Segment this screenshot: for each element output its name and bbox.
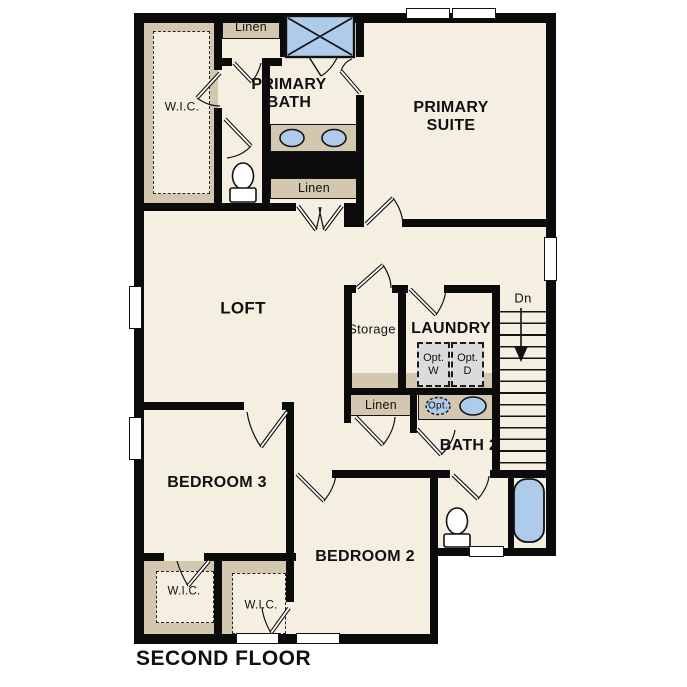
shower <box>286 16 354 76</box>
label-linen-mid: Linen <box>298 181 330 195</box>
bathtub <box>514 479 544 542</box>
sink <box>460 397 486 415</box>
label-bath2: BATH 2 <box>440 437 498 455</box>
fixtures-layer <box>0 0 687 687</box>
label-opt-sink: Opt. <box>428 400 448 411</box>
plan-title: SECOND FLOOR <box>136 647 311 671</box>
label-laundry: LAUNDRY <box>411 320 491 338</box>
label-primary-bath: PRIMARY BATH <box>251 76 326 112</box>
toilet <box>230 163 256 202</box>
label-stairs-dn: Dn <box>514 292 531 307</box>
toilet <box>444 508 470 547</box>
label-bedroom2: BEDROOM 2 <box>315 548 415 566</box>
floor-plan: Opt. W Opt. D <box>0 0 687 687</box>
label-bedroom3-wic: W.I.C. <box>167 586 200 599</box>
label-linen-top: Linen <box>235 20 267 34</box>
label-loft: LOFT <box>220 298 266 317</box>
label-primary-wic: W.I.C. <box>165 100 199 113</box>
label-primary-suite: PRIMARY SUITE <box>413 99 488 135</box>
sink <box>280 130 346 147</box>
label-bedroom2-wic: W.I.C. <box>244 600 277 613</box>
label-bedroom3: BEDROOM 3 <box>167 474 267 492</box>
label-storage: Storage <box>348 323 396 338</box>
stairs-down-arrow <box>514 308 528 362</box>
label-linen-hall: Linen <box>365 398 397 412</box>
